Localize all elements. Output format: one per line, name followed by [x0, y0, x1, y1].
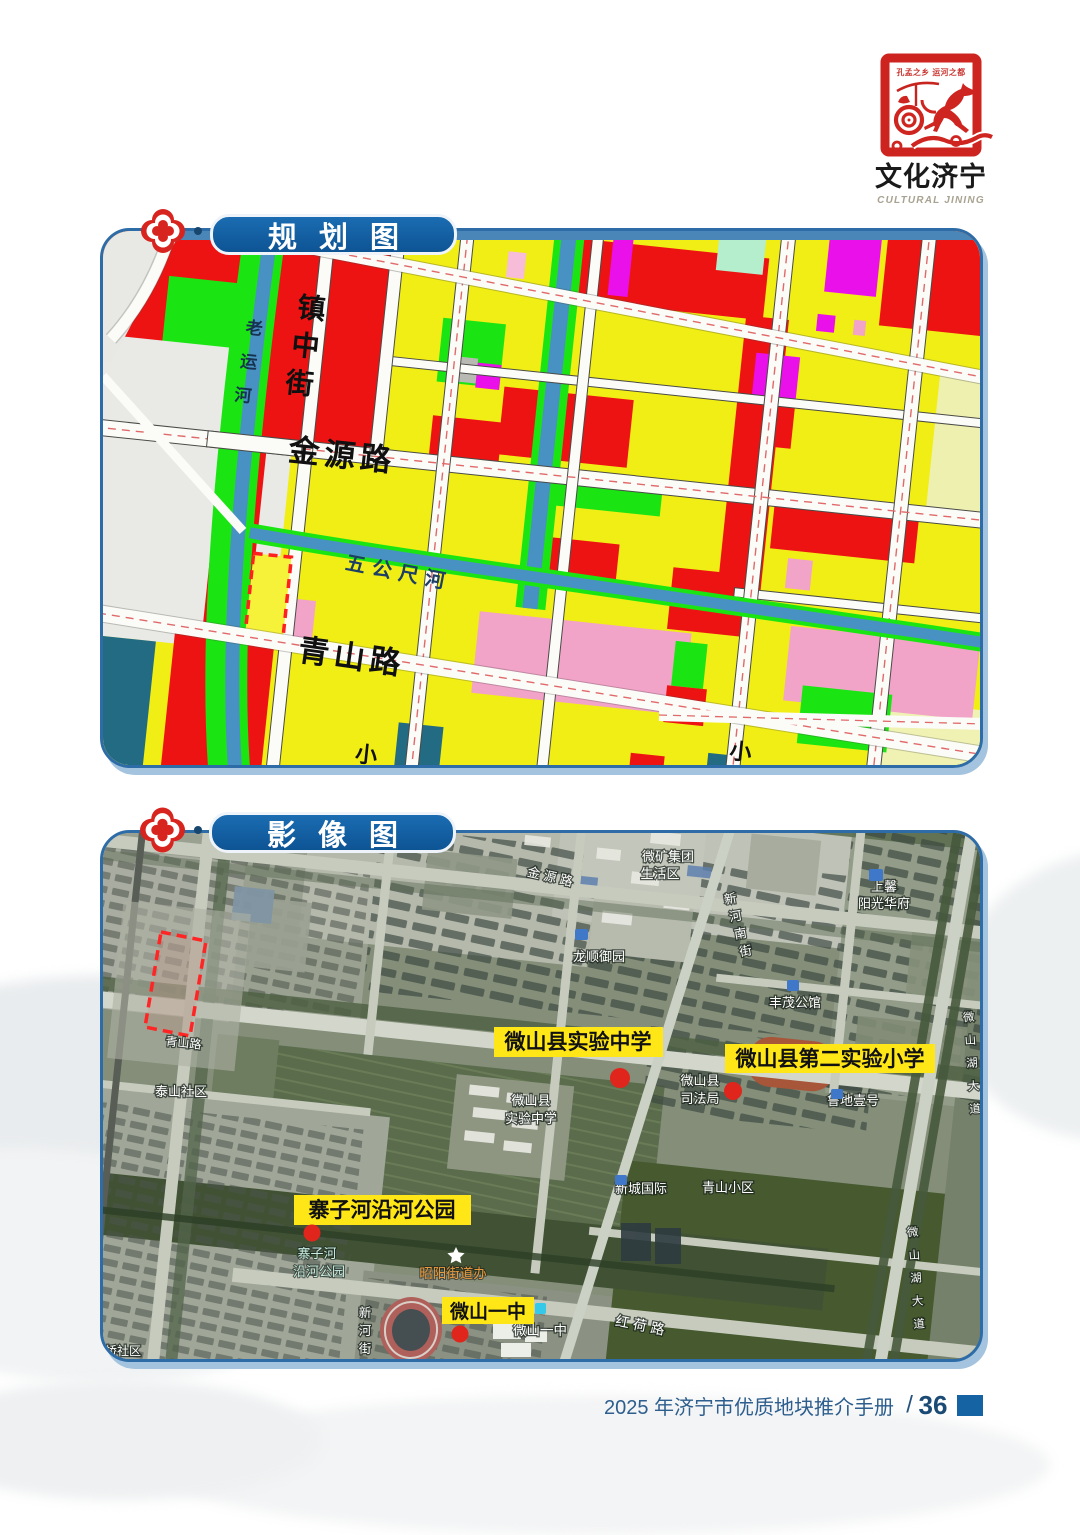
svg-text:大: 大 — [911, 1293, 924, 1308]
svg-text:新: 新 — [359, 1305, 372, 1320]
svg-text:小: 小 — [354, 741, 379, 765]
svg-text:湖: 湖 — [910, 1271, 922, 1286]
svg-text:微山一中: 微山一中 — [513, 1323, 567, 1338]
svg-text:昭阳街道办: 昭阳街道办 — [419, 1266, 487, 1281]
svg-text:街: 街 — [738, 943, 753, 959]
svg-text:湖: 湖 — [966, 1056, 978, 1071]
svg-text:镇: 镇 — [296, 292, 327, 326]
svg-text:寨子河: 寨子河 — [297, 1246, 336, 1261]
svg-text:道: 道 — [969, 1101, 980, 1116]
svg-text:街: 街 — [283, 366, 315, 401]
svg-text:街: 街 — [359, 1342, 372, 1356]
svg-text:山: 山 — [908, 1249, 920, 1263]
svg-text:司法局: 司法局 — [680, 1091, 719, 1106]
svg-text:CULTURAL JINING: CULTURAL JINING — [877, 195, 985, 206]
svg-text:微: 微 — [906, 1225, 919, 1240]
svg-text:实验中学: 实验中学 — [505, 1111, 557, 1126]
svg-text:微山一中: 微山一中 — [449, 1300, 526, 1323]
svg-text:阳光华府: 阳光华府 — [858, 896, 910, 911]
svg-text:河: 河 — [234, 385, 253, 406]
svg-text:大: 大 — [967, 1078, 980, 1093]
svg-text:河: 河 — [359, 1324, 372, 1338]
svg-text:上馨: 上馨 — [871, 879, 897, 894]
svg-text:微山县: 微山县 — [680, 1073, 719, 1088]
svg-text:生活区: 生活区 — [640, 866, 679, 881]
svg-text:泰山社区: 泰山社区 — [155, 1084, 207, 1099]
svg-text:青山小区: 青山小区 — [702, 1180, 754, 1195]
svg-text:龙顺御园: 龙顺御园 — [573, 949, 625, 964]
svg-text:微山县实验中学: 微山县实验中学 — [504, 1030, 652, 1054]
svg-text:微: 微 — [962, 1010, 975, 1025]
svg-text:丰茂公馆: 丰茂公馆 — [769, 995, 821, 1010]
svg-text:小: 小 — [728, 738, 753, 765]
svg-text:文化济宁: 文化济宁 — [875, 161, 987, 192]
svg-text:老: 老 — [244, 317, 264, 339]
svg-text:微矿集团: 微矿集团 — [642, 849, 694, 864]
svg-text:新: 新 — [723, 890, 738, 907]
svg-text:山: 山 — [964, 1034, 976, 1048]
svg-text:寨子河沿河公园: 寨子河沿河公园 — [309, 1198, 456, 1222]
svg-text:道: 道 — [913, 1316, 926, 1331]
svg-text:沿河公园: 沿河公园 — [293, 1264, 345, 1279]
svg-text:运: 运 — [239, 352, 258, 373]
svg-text:微山县第二实验小学: 微山县第二实验小学 — [735, 1047, 925, 1071]
svg-text:孔孟之乡 运河之都: 孔孟之乡 运河之都 — [896, 67, 965, 77]
svg-text:中: 中 — [290, 329, 321, 363]
svg-text:微山县: 微山县 — [511, 1093, 550, 1108]
svg-text:南: 南 — [733, 925, 748, 942]
